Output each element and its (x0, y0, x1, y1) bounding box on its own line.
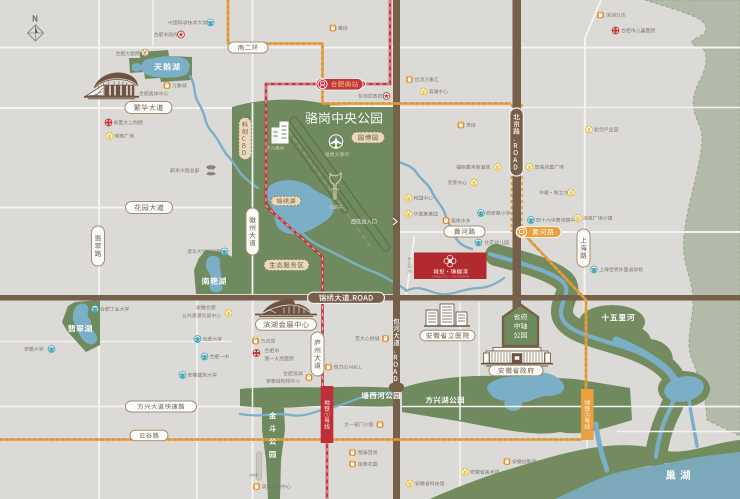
svg-text:CHENGTOU - PUYUEWAN: CHENGTOU - PUYUEWAN (432, 276, 469, 279)
